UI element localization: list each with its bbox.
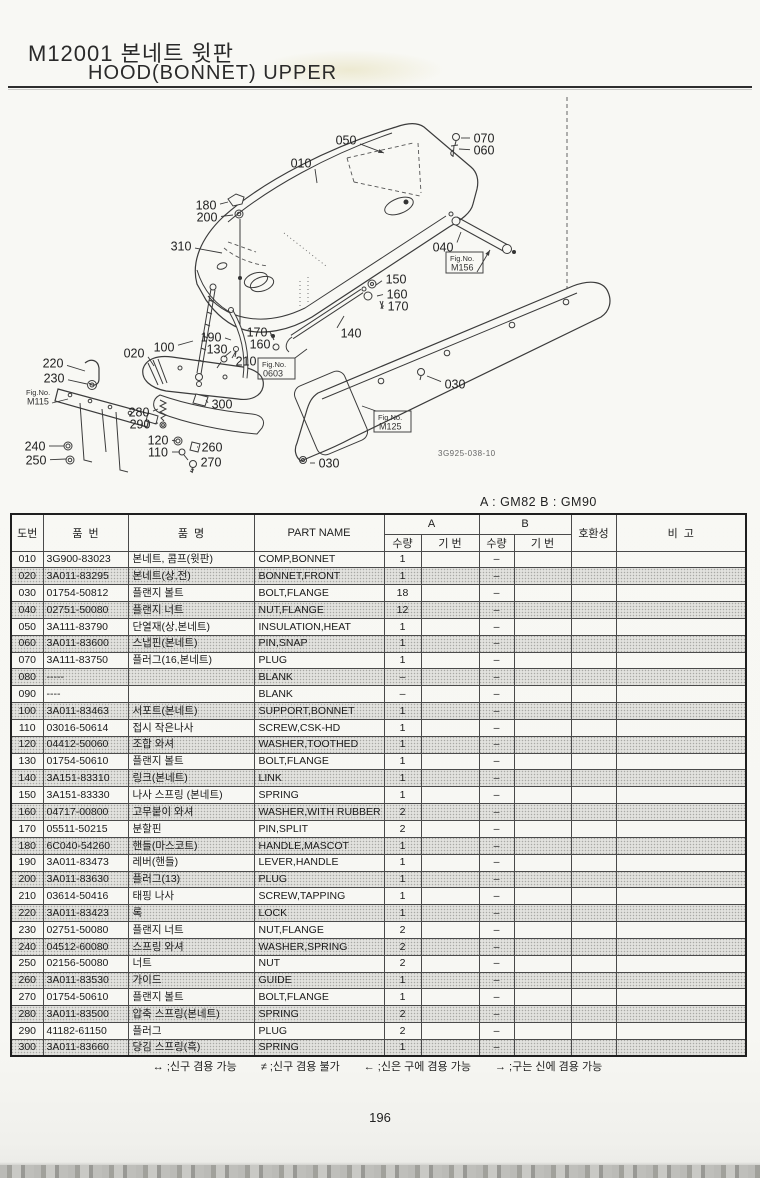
- callout-label: 290: [130, 418, 151, 432]
- table-cell: 220: [11, 905, 43, 922]
- table-cell: 41182-61150: [43, 1023, 128, 1040]
- table-cell: 6C040-54260: [43, 837, 128, 854]
- table-row: 04002751-50080플랜지 너트NUT,FLANGE12–: [11, 602, 746, 619]
- table-cell: [616, 602, 746, 619]
- table-cell: LEVER,HANDLE: [254, 854, 384, 871]
- table-cell: [571, 770, 616, 787]
- table-cell: [128, 686, 254, 703]
- table-cell: –: [479, 618, 514, 635]
- table-cell: 1: [384, 888, 421, 905]
- table-cell: 플랜지 너트: [128, 602, 254, 619]
- table-cell: [571, 719, 616, 736]
- table-cell: 2: [384, 804, 421, 821]
- table-cell: PIN,SNAP: [254, 635, 384, 652]
- table-cell: 080: [11, 669, 43, 686]
- table-cell: 090: [11, 686, 43, 703]
- table-cell: [421, 888, 479, 905]
- table-cell: [514, 1023, 571, 1040]
- table-cell: [616, 1023, 746, 1040]
- callout-label: 010: [291, 157, 312, 171]
- table-cell: 2: [384, 1023, 421, 1040]
- table-cell: –: [479, 652, 514, 669]
- table-cell: –: [479, 585, 514, 602]
- table-cell: [616, 686, 746, 703]
- table-cell: SCREW,TAPPING: [254, 888, 384, 905]
- svg-text:M115: M115: [27, 397, 49, 407]
- table-cell: [514, 938, 571, 955]
- table-cell: [421, 837, 479, 854]
- table-cell: 태핑 나사: [128, 888, 254, 905]
- callout-label: 220: [43, 357, 64, 371]
- table-cell: 1: [384, 652, 421, 669]
- table-cell: [514, 804, 571, 821]
- callout-leader: [50, 459, 66, 460]
- callout-label: 310: [171, 240, 192, 254]
- table-cell: 1: [384, 770, 421, 787]
- parts-diagram: Fig.No.M115Fig.No.0603Fig.No.M125Fig.No.…: [0, 95, 760, 495]
- callout-label: 130: [207, 343, 228, 357]
- legend-item: ← ;신은 구에 겸용 가능: [364, 1058, 471, 1074]
- table-cell: [571, 804, 616, 821]
- callout-label: 060: [474, 144, 495, 158]
- table-cell: 170: [11, 821, 43, 838]
- table-row: 29041182-61150플러그PLUG2–: [11, 1023, 746, 1040]
- table-cell: [571, 1023, 616, 1040]
- table-cell: 2: [384, 955, 421, 972]
- table-cell: [616, 1006, 746, 1023]
- callout-label: 100: [154, 341, 175, 355]
- table-cell: SPRING: [254, 1006, 384, 1023]
- table-cell: [616, 568, 746, 585]
- table-row: 2603A011-83530가이드GUIDE1–: [11, 972, 746, 989]
- table-cell: 1: [384, 854, 421, 871]
- table-cell: 1: [384, 703, 421, 720]
- table-cell: [616, 1039, 746, 1056]
- table-cell: [616, 652, 746, 669]
- table-cell: [616, 551, 746, 568]
- legend-item: ≠ ;신구 겸용 불가: [261, 1058, 340, 1074]
- table-cell: [571, 888, 616, 905]
- callout-leader: [459, 149, 470, 150]
- table-row: 1903A011-83473레버(핸들)LEVER,HANDLE1–: [11, 854, 746, 871]
- table-cell: 01754-50812: [43, 585, 128, 602]
- table-cell: [421, 669, 479, 686]
- table-cell: 04512-60080: [43, 938, 128, 955]
- col-header-compat: 호환성: [571, 514, 616, 551]
- table-cell: BONNET,FRONT: [254, 568, 384, 585]
- table-row: 1403A151-83310링크(본네트)LINK1–: [11, 770, 746, 787]
- table-cell: [514, 955, 571, 972]
- parts-table: 도번 품 번 품 명 PART NAME A B 호환성 비 고 수량 기 번 …: [10, 513, 747, 1057]
- table-cell: 본네트(상,전): [128, 568, 254, 585]
- table-cell: 당김 스프링(흑): [128, 1039, 254, 1056]
- table-row: 16004717-00800고무붙이 와셔WASHER,WITH RUBBER2…: [11, 804, 746, 821]
- table-cell: [421, 955, 479, 972]
- svg-text:M125: M125: [379, 422, 402, 432]
- table-row: 27001754-50610플랜지 볼트BOLT,FLANGE1–: [11, 989, 746, 1006]
- table-cell: 1: [384, 837, 421, 854]
- table-cell: [514, 922, 571, 939]
- compat-legend: ↔ ;신구 겸용 가능≠ ;신구 겸용 불가← ;신은 구에 겸용 가능→ ;구…: [10, 1058, 745, 1074]
- table-cell: [421, 753, 479, 770]
- table-cell: –: [479, 787, 514, 804]
- table-cell: [421, 686, 479, 703]
- table-cell: –: [479, 1006, 514, 1023]
- table-cell: 210: [11, 888, 43, 905]
- table-cell: 110: [11, 719, 43, 736]
- table-cell: 3A011-83630: [43, 871, 128, 888]
- table-cell: –: [479, 922, 514, 939]
- table-cell: [616, 703, 746, 720]
- table-cell: 1: [384, 871, 421, 888]
- table-cell: PLUG: [254, 652, 384, 669]
- table-cell: [616, 787, 746, 804]
- callout-label: 150: [386, 273, 407, 287]
- table-cell: [571, 972, 616, 989]
- table-cell: 스냅핀(본네트): [128, 635, 254, 652]
- table-cell: BOLT,FLANGE: [254, 989, 384, 1006]
- table-cell: 플랜지 볼트: [128, 989, 254, 1006]
- table-cell: [571, 854, 616, 871]
- table-cell: –: [479, 1039, 514, 1056]
- table-cell: –: [479, 804, 514, 821]
- table-cell: 290: [11, 1023, 43, 1040]
- table-cell: 접시 작은나사: [128, 719, 254, 736]
- table-cell: [616, 922, 746, 939]
- col-header-qty-a: 수량: [384, 534, 421, 551]
- table-cell: 05511-50215: [43, 821, 128, 838]
- table-cell: [514, 989, 571, 1006]
- table-cell: 1: [384, 551, 421, 568]
- col-header-qty-b: 수량: [479, 534, 514, 551]
- table-cell: [616, 837, 746, 854]
- table-cell: [616, 618, 746, 635]
- col-header-serial-b: 기 번: [514, 534, 571, 551]
- strut-part: [449, 212, 516, 254]
- table-cell: [421, 770, 479, 787]
- table-cell: 서포트(본네트): [128, 703, 254, 720]
- table-cell: 03016-50614: [43, 719, 128, 736]
- table-row: 03001754-50812플랜지 볼트BOLT,FLANGE18–: [11, 585, 746, 602]
- table-cell: [571, 686, 616, 703]
- table-cell: BOLT,FLANGE: [254, 585, 384, 602]
- table-cell: 040: [11, 602, 43, 619]
- callout-label: 260: [202, 441, 223, 455]
- table-cell: [571, 1006, 616, 1023]
- callout-leader: [172, 440, 176, 441]
- callout-label: 040: [433, 241, 454, 255]
- table-cell: INSULATION,HEAT: [254, 618, 384, 635]
- table-cell: [421, 618, 479, 635]
- table-cell: LINK: [254, 770, 384, 787]
- table-cell: 1: [384, 753, 421, 770]
- table-cell: [616, 753, 746, 770]
- callout-leader: [377, 295, 383, 296]
- table-cell: [421, 736, 479, 753]
- callout-label: 110: [148, 446, 168, 460]
- table-row: 3003A011-83660당김 스프링(흑)SPRING1–: [11, 1039, 746, 1056]
- table-cell: 3A011-83530: [43, 972, 128, 989]
- table-cell: [514, 568, 571, 585]
- table-cell: 270: [11, 989, 43, 1006]
- table-cell: [571, 753, 616, 770]
- table-cell: [571, 922, 616, 939]
- table-cell: 020: [11, 568, 43, 585]
- table-row: 0703A111-83750플러그(16,본네트)PLUG1–: [11, 652, 746, 669]
- table-cell: 2: [384, 922, 421, 939]
- table-row: 12004412-50060조합 와셔WASHER,TOOTHED1–: [11, 736, 746, 753]
- table-cell: 3A011-83660: [43, 1039, 128, 1056]
- table-cell: –: [479, 635, 514, 652]
- table-cell: 1: [384, 787, 421, 804]
- table-cell: GUIDE: [254, 972, 384, 989]
- table-cell: 3A111-83790: [43, 618, 128, 635]
- table-cell: ----: [43, 686, 128, 703]
- table-cell: –: [479, 770, 514, 787]
- table-cell: [421, 787, 479, 804]
- table-cell: 120: [11, 736, 43, 753]
- table-cell: 050: [11, 618, 43, 635]
- table-cell: [421, 972, 479, 989]
- table-cell: –: [479, 602, 514, 619]
- table-cell: –: [479, 854, 514, 871]
- table-cell: –: [479, 972, 514, 989]
- table-cell: 060: [11, 635, 43, 652]
- table-row: 11003016-50614접시 작은나사SCREW,CSK-HD1–: [11, 719, 746, 736]
- table-cell: 분할핀: [128, 821, 254, 838]
- table-cell: 1: [384, 989, 421, 1006]
- callout-leader: [220, 202, 228, 204]
- table-cell: –: [479, 736, 514, 753]
- table-cell: [616, 972, 746, 989]
- table-cell: 3A011-83423: [43, 905, 128, 922]
- callout-label: 170: [388, 300, 409, 314]
- legend-item: → ;구는 신에 겸용 가능: [495, 1058, 602, 1074]
- table-row: 1503A151-83330나사 스프링 (본네트)SPRING1–: [11, 787, 746, 804]
- scan-edge-artifact: [0, 1165, 760, 1178]
- callout-label: 230: [44, 372, 65, 386]
- table-cell: 2: [384, 1006, 421, 1023]
- callout-leader: [178, 341, 193, 345]
- table-cell: HANDLE,MASCOT: [254, 837, 384, 854]
- table-cell: 3A011-83463: [43, 703, 128, 720]
- table-cell: –: [479, 955, 514, 972]
- table-cell: 300: [11, 1039, 43, 1056]
- table-cell: 본네트, 콤프(윗판): [128, 551, 254, 568]
- table-cell: 3A151-83330: [43, 787, 128, 804]
- table-cell: –: [479, 837, 514, 854]
- table-cell: [421, 568, 479, 585]
- table-cell: SCREW,CSK-HD: [254, 719, 384, 736]
- callout-label: 200: [197, 211, 218, 225]
- table-cell: 핸들(마스코트): [128, 837, 254, 854]
- table-cell: [514, 602, 571, 619]
- table-cell: 180: [11, 837, 43, 854]
- table-cell: [571, 635, 616, 652]
- table-cell: 단열재(상,본네트): [128, 618, 254, 635]
- callout-leader: [457, 232, 461, 243]
- table-cell: [514, 888, 571, 905]
- table-cell: [571, 736, 616, 753]
- table-cell: NUT,FLANGE: [254, 602, 384, 619]
- table-cell: [421, 922, 479, 939]
- table-cell: [616, 585, 746, 602]
- table-row: 17005511-50215분할핀PIN,SPLIT2–: [11, 821, 746, 838]
- table-cell: [514, 972, 571, 989]
- table-cell: [421, 585, 479, 602]
- table-cell: 3A011-83500: [43, 1006, 128, 1023]
- table-cell: [616, 871, 746, 888]
- table-cell: 02751-50080: [43, 602, 128, 619]
- table-cell: 플러그(13): [128, 871, 254, 888]
- table-cell: [616, 635, 746, 652]
- table-cell: 130: [11, 753, 43, 770]
- table-cell: [571, 938, 616, 955]
- table-cell: [616, 955, 746, 972]
- table-cell: 플랜지 너트: [128, 922, 254, 939]
- page-number: 196: [0, 1110, 760, 1125]
- table-cell: [571, 1039, 616, 1056]
- callout-leader: [376, 281, 382, 285]
- table-cell: 플랜지 볼트: [128, 585, 254, 602]
- table-row: 2803A011-83500압축 스프링(본네트)SPRING2–: [11, 1006, 746, 1023]
- fig-ref: Fig.No.0603: [258, 349, 307, 379]
- table-cell: [514, 703, 571, 720]
- table-cell: [421, 989, 479, 1006]
- table-cell: -----: [43, 669, 128, 686]
- table-cell: 01754-50610: [43, 753, 128, 770]
- table-cell: [571, 618, 616, 635]
- table-cell: –: [384, 669, 421, 686]
- table-cell: [514, 837, 571, 854]
- table-cell: NUT: [254, 955, 384, 972]
- callout-leader: [225, 338, 231, 340]
- table-cell: [616, 989, 746, 1006]
- table-cell: 02156-50080: [43, 955, 128, 972]
- table-cell: PLUG: [254, 1023, 384, 1040]
- table-cell: 1: [384, 736, 421, 753]
- table-cell: [616, 804, 746, 821]
- table-cell: –: [479, 669, 514, 686]
- table-cell: –: [479, 989, 514, 1006]
- table-row: 0203A011-83295본네트(상,전)BONNET,FRONT1–: [11, 568, 746, 585]
- table-cell: WASHER,TOOTHED: [254, 736, 384, 753]
- table-cell: [421, 804, 479, 821]
- table-cell: –: [479, 1023, 514, 1040]
- table-cell: 150: [11, 787, 43, 804]
- table-cell: 1: [384, 1039, 421, 1056]
- callout-label: 210: [236, 355, 257, 369]
- table-cell: –: [479, 821, 514, 838]
- table-cell: WASHER,WITH RUBBER: [254, 804, 384, 821]
- table-cell: COMP,BONNET: [254, 551, 384, 568]
- table-cell: [616, 736, 746, 753]
- table-cell: [514, 753, 571, 770]
- table-cell: [514, 686, 571, 703]
- table-row: 21003614-50416태핑 나사SCREW,TAPPING1–: [11, 888, 746, 905]
- table-cell: [514, 905, 571, 922]
- table-cell: 플러그(16,본네트): [128, 652, 254, 669]
- table-cell: 3A011-83473: [43, 854, 128, 871]
- table-cell: [421, 719, 479, 736]
- title-divider: [8, 86, 752, 88]
- table-cell: 3A011-83295: [43, 568, 128, 585]
- table-cell: [571, 837, 616, 854]
- table-cell: –: [479, 568, 514, 585]
- table-cell: [571, 989, 616, 1006]
- table-cell: [616, 888, 746, 905]
- table-cell: [421, 871, 479, 888]
- table-row: 0503A111-83790단열재(상,본네트)INSULATION,HEAT1…: [11, 618, 746, 635]
- table-cell: 250: [11, 955, 43, 972]
- table-cell: [514, 635, 571, 652]
- col-header-part-no: 품 번: [43, 514, 128, 551]
- page-title-english: HOOD(BONNET) UPPER: [88, 62, 337, 85]
- table-cell: [514, 871, 571, 888]
- table-cell: 3A151-83310: [43, 770, 128, 787]
- table-cell: 1: [384, 568, 421, 585]
- table-cell: –: [384, 686, 421, 703]
- table-cell: 1: [384, 635, 421, 652]
- table-cell: 2: [384, 821, 421, 838]
- table-cell: [514, 821, 571, 838]
- table-cell: 200: [11, 871, 43, 888]
- table-cell: 1: [384, 618, 421, 635]
- table-cell: 플랜지 볼트: [128, 753, 254, 770]
- table-cell: 230: [11, 922, 43, 939]
- drawing-code: 3G925-038-10: [438, 449, 496, 458]
- table-cell: –: [479, 719, 514, 736]
- table-cell: [421, 905, 479, 922]
- table-cell: [421, 854, 479, 871]
- table-row: 13001754-50610플랜지 볼트BOLT,FLANGE1–: [11, 753, 746, 770]
- table-cell: 240: [11, 938, 43, 955]
- col-header-model-a: A: [384, 514, 479, 534]
- col-header-part-name: PART NAME: [254, 514, 384, 551]
- table-row: 25002156-50080너트NUT2–: [11, 955, 746, 972]
- table-row: 23002751-50080플랜지 너트NUT,FLANGE2–: [11, 922, 746, 939]
- table-cell: 030: [11, 585, 43, 602]
- table-cell: 190: [11, 854, 43, 871]
- col-header-name-ko: 품 명: [128, 514, 254, 551]
- table-cell: [616, 854, 746, 871]
- table-cell: [421, 1023, 479, 1040]
- table-cell: [616, 821, 746, 838]
- table-cell: [514, 770, 571, 787]
- table-cell: [421, 635, 479, 652]
- table-cell: [421, 821, 479, 838]
- table-cell: [571, 652, 616, 669]
- table-cell: 3A111-83750: [43, 652, 128, 669]
- table-cell: [421, 652, 479, 669]
- col-header-serial-a: 기 번: [421, 534, 479, 551]
- table-cell: [421, 1039, 479, 1056]
- table-cell: 04717-00800: [43, 804, 128, 821]
- table-cell: [421, 602, 479, 619]
- table-cell: [514, 719, 571, 736]
- table-cell: 18: [384, 585, 421, 602]
- table-cell: 010: [11, 551, 43, 568]
- table-cell: 3A011-83600: [43, 635, 128, 652]
- catalog-page: M12001 본네트 윗판 HOOD(BONNET) UPPER: [0, 0, 760, 1178]
- table-cell: [514, 618, 571, 635]
- table-cell: [571, 551, 616, 568]
- table-cell: 1: [384, 719, 421, 736]
- table-cell: [514, 787, 571, 804]
- table-cell: 280: [11, 1006, 43, 1023]
- table-cell: BOLT,FLANGE: [254, 753, 384, 770]
- table-cell: 140: [11, 770, 43, 787]
